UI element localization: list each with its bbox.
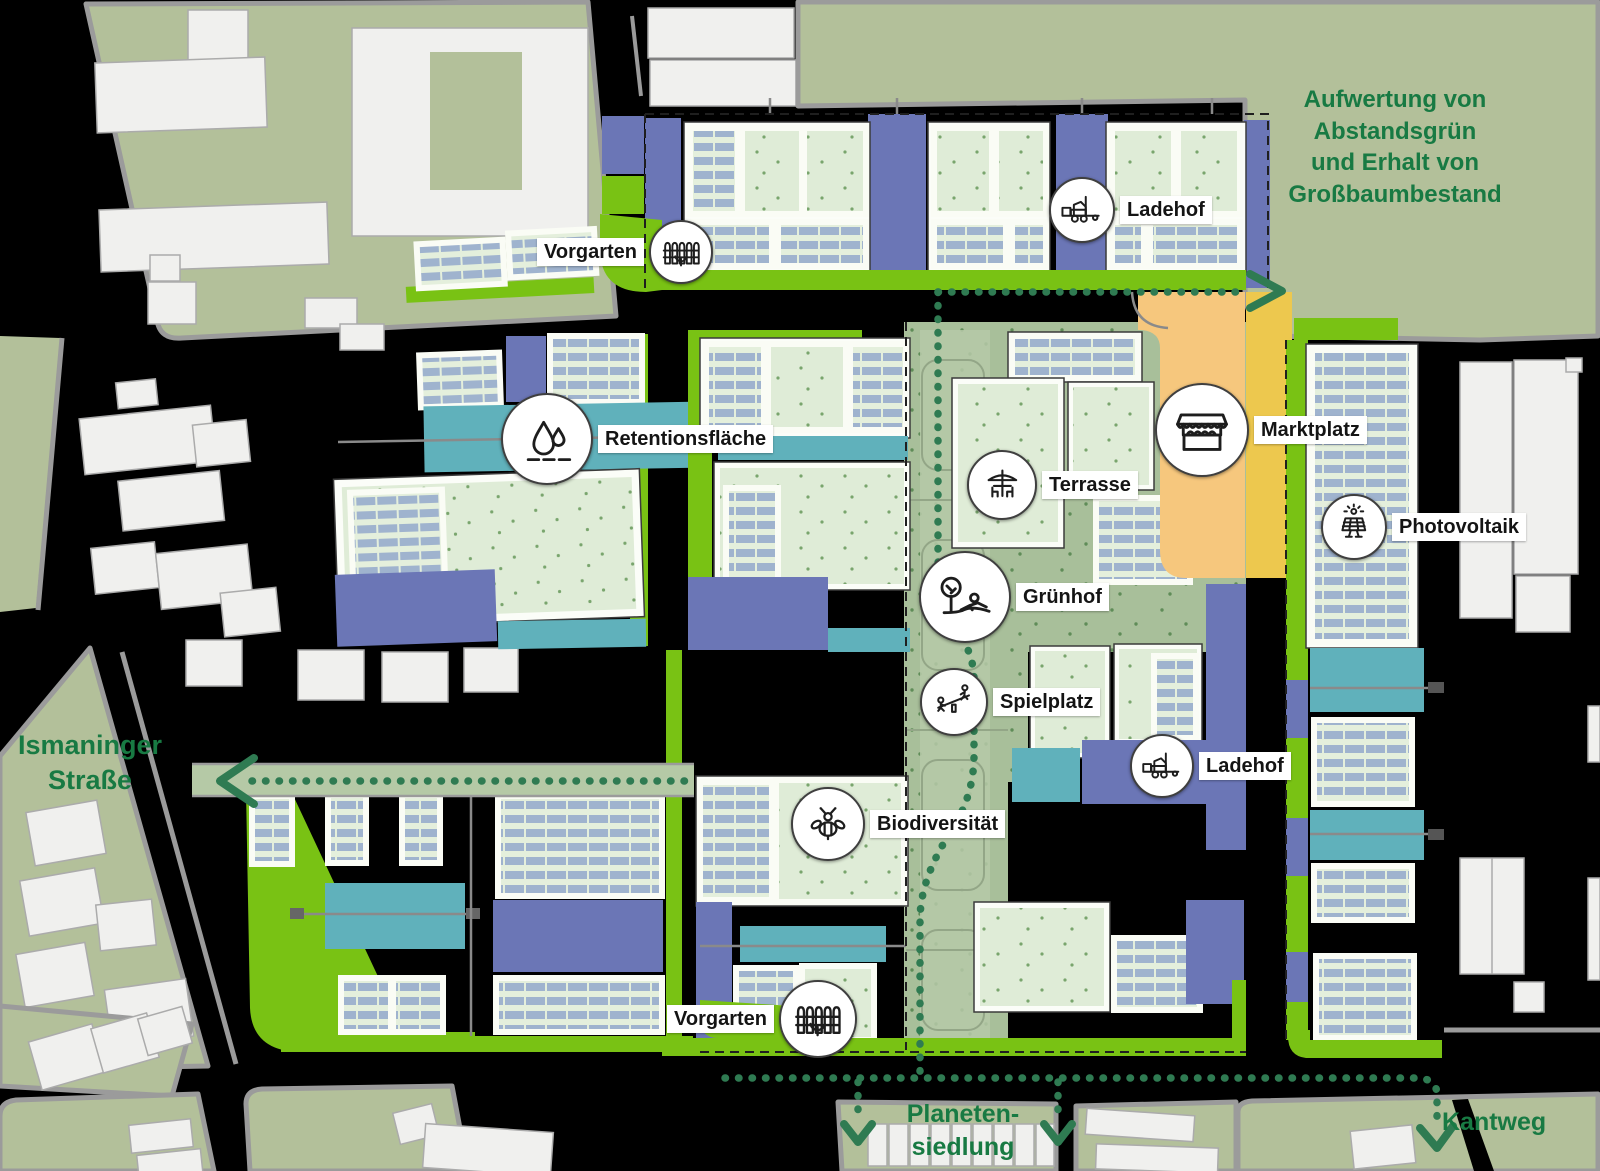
annotation-aufwertung: Aufwertung von Abstandsgrün und Erhalt v… (1240, 84, 1550, 211)
annotation-line: Kantweg (1442, 1108, 1546, 1137)
label-spielplatz: Spielplatz (993, 688, 1100, 716)
label-gruenhof: Grünhof (1016, 583, 1109, 611)
annotation-line: Planeten- (855, 1098, 1071, 1131)
callout-ladehof-sued: Ladehof (1130, 734, 1291, 798)
callout-photovoltaik: Photovoltaik (1321, 494, 1526, 560)
fence-icon (779, 980, 857, 1058)
label-ladehof-top: Ladehof (1120, 196, 1212, 224)
callout-gruenhof: Grünhof (919, 551, 1109, 643)
label-ladehof-sued: Ladehof (1199, 752, 1291, 780)
annotation-ismaninger-strasse: Ismaninger Straße (8, 728, 172, 798)
label-biodiversitaet: Biodiversität (870, 810, 1005, 838)
annotation-line: Aufwertung von (1240, 84, 1550, 116)
annotation-planetensiedlung: Planeten- siedlung (855, 1098, 1071, 1163)
annotation-line: Großbaumbestand (1240, 179, 1550, 211)
retention-block (334, 334, 712, 650)
annotation-line: Abstandsgrün (1240, 116, 1550, 148)
callout-spielplatz: Spielplatz (920, 668, 1100, 736)
callout-vorgarten-sued: Vorgarten (667, 980, 857, 1058)
annotation-line: siedlung (855, 1131, 1071, 1164)
parasol-table-icon (967, 450, 1037, 520)
fence-icon (649, 220, 713, 284)
forklift-icon (1049, 177, 1115, 243)
callout-terrasse: Terrasse (967, 450, 1138, 520)
label-vorgarten-top: Vorgarten (537, 238, 644, 266)
callout-ladehof-top: Ladehof (1049, 177, 1212, 243)
callout-biodiversitaet: Biodiversität (791, 787, 1005, 861)
southwest-block (246, 790, 693, 1052)
label-photovoltaik: Photovoltaik (1392, 513, 1526, 541)
label-retentionsflaeche: Retentionsfläche (598, 425, 773, 453)
callout-marktplatz: Marktplatz (1155, 383, 1367, 477)
forklift-icon (1130, 734, 1194, 798)
annotation-kantweg: Kantweg (1442, 1108, 1546, 1137)
annotation-line: Ismaninger (8, 728, 172, 763)
label-marktplatz: Marktplatz (1254, 416, 1367, 444)
bee-icon (791, 787, 865, 861)
tree-person-icon (919, 551, 1011, 643)
market-stall-icon (1155, 383, 1249, 477)
callout-retentionsflaeche: Retentionsfläche (501, 393, 773, 485)
label-terrasse: Terrasse (1042, 471, 1138, 499)
water-drops-icon (501, 393, 593, 485)
solar-panel-icon (1321, 494, 1387, 560)
site-plan: Vorgarten Ladehof Retentionsfläche Markt… (0, 0, 1600, 1171)
label-vorgarten-sued: Vorgarten (667, 1005, 774, 1033)
seesaw-icon (920, 668, 988, 736)
annotation-line: und Erhalt von (1240, 147, 1550, 179)
annotation-line: Straße (8, 763, 172, 798)
callout-vorgarten-top: Vorgarten (537, 220, 713, 284)
